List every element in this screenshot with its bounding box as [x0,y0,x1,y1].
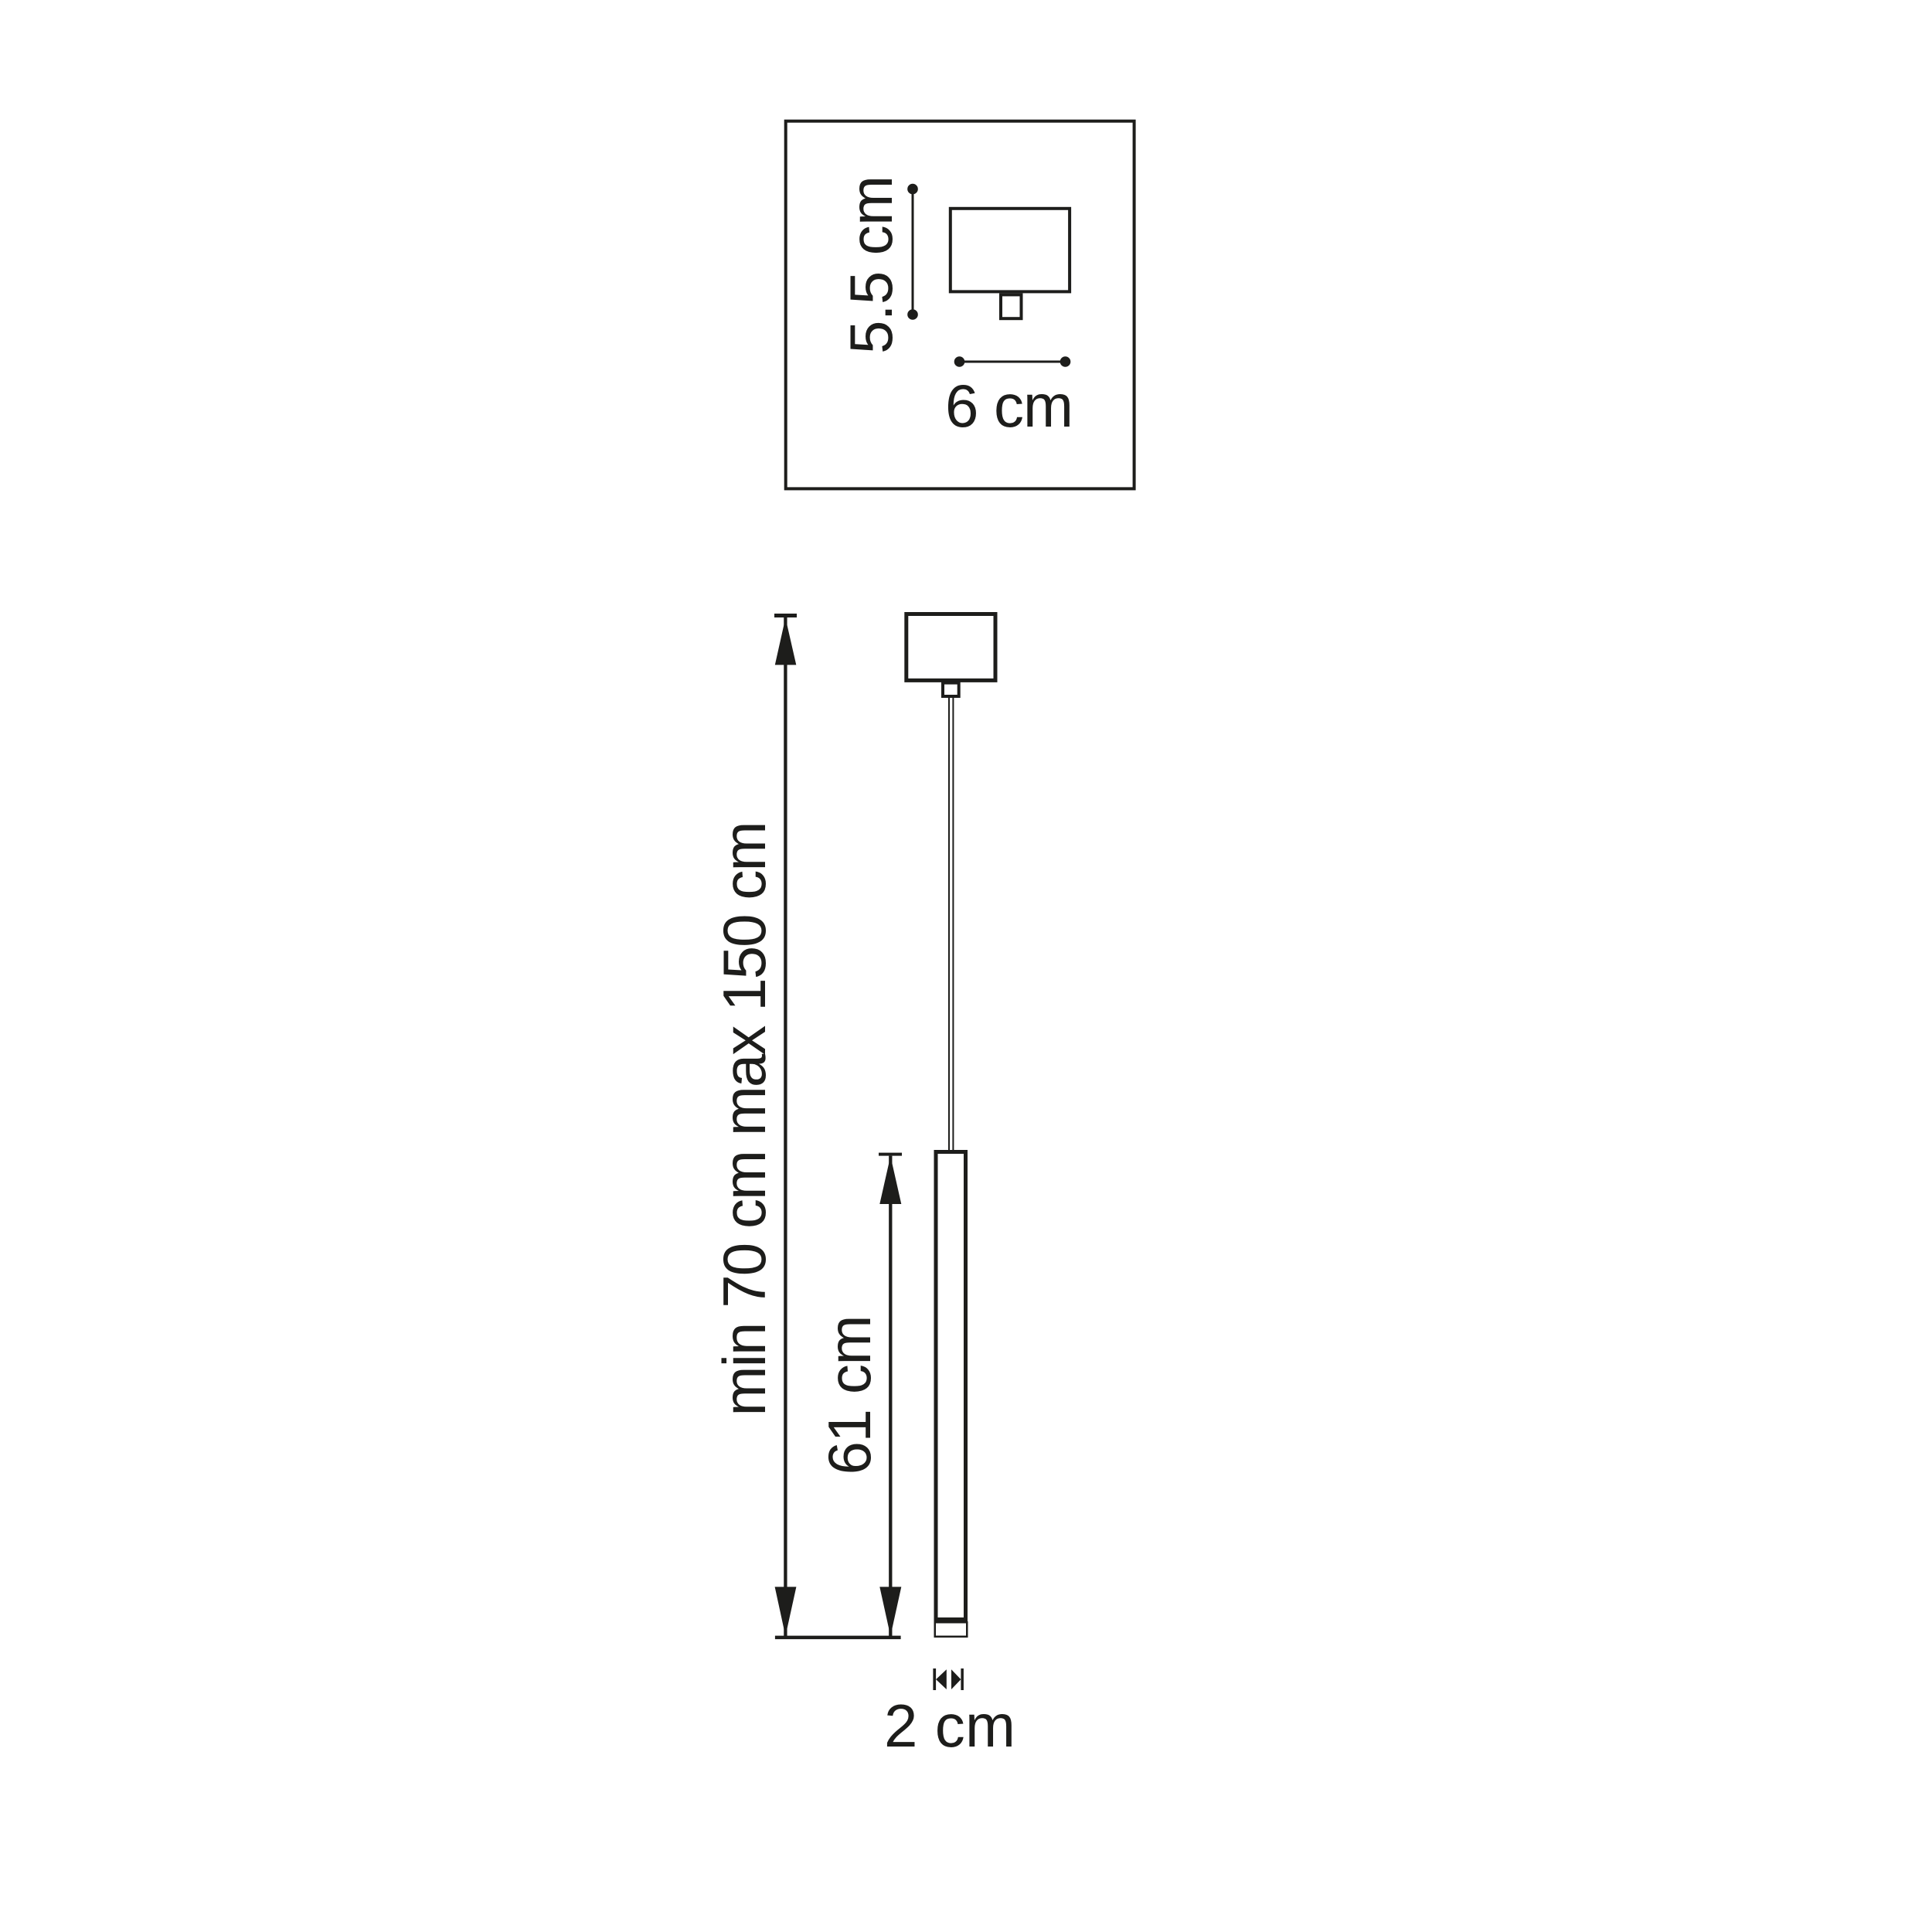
svg-text:2 cm: 2 cm [884,1692,1015,1760]
svg-text:min 70 cm max 150 cm: min 70 cm max 150 cm [710,821,778,1417]
svg-text:6 cm: 6 cm [945,372,1073,440]
svg-text:61 cm: 61 cm [815,1315,883,1475]
svg-text:5.5 cm: 5.5 cm [837,175,905,354]
